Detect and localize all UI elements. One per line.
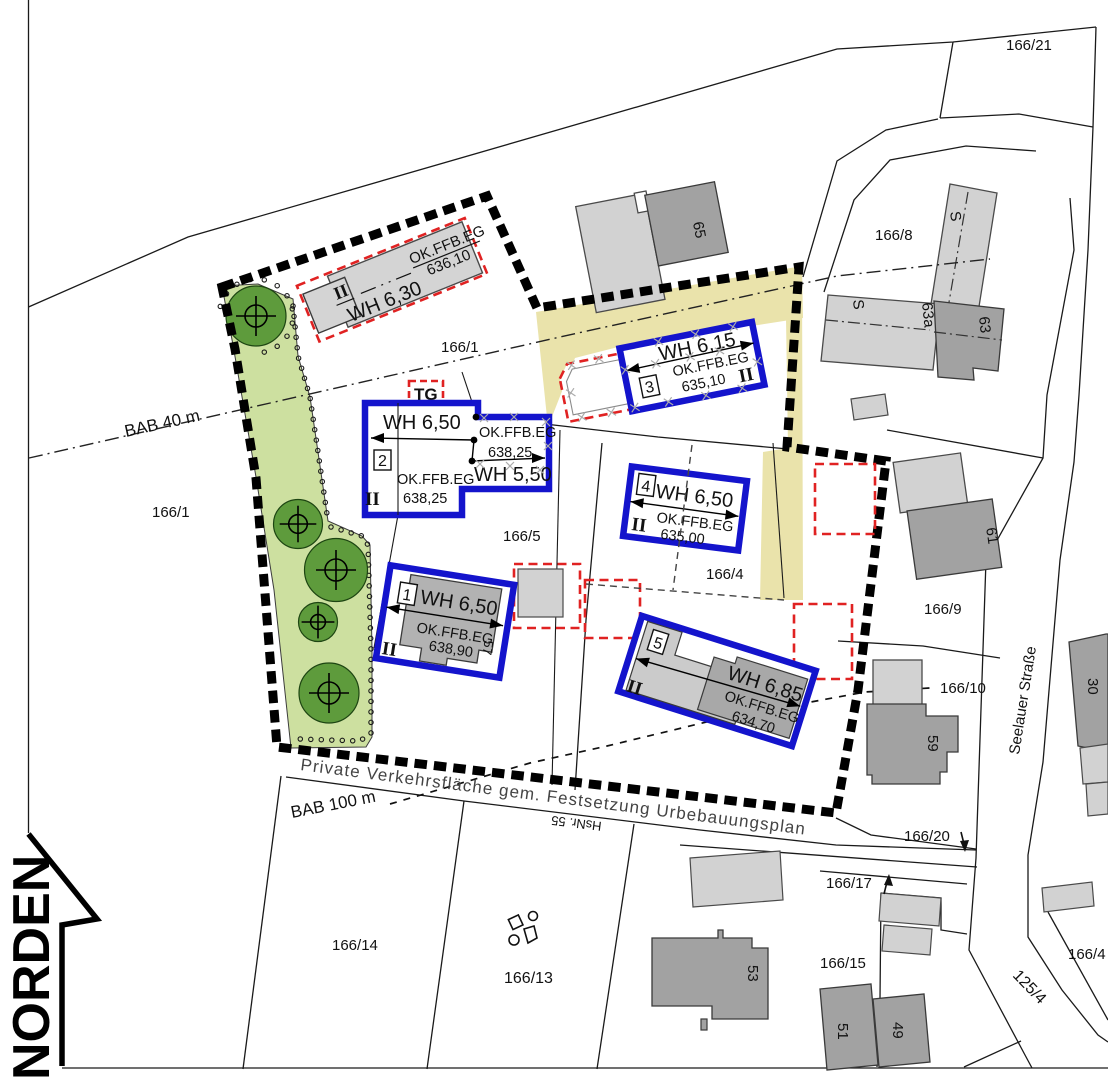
svg-text:166/10: 166/10	[940, 680, 986, 697]
svg-text:166/4: 166/4	[706, 566, 744, 583]
svg-text:166/20: 166/20	[904, 828, 950, 845]
svg-text:49: 49	[889, 1022, 906, 1039]
svg-text:166/17: 166/17	[826, 875, 872, 892]
svg-text:30: 30	[1084, 678, 1101, 695]
svg-text:63: 63	[975, 316, 994, 334]
svg-text:166/5: 166/5	[503, 528, 541, 545]
svg-text:53: 53	[744, 965, 761, 982]
svg-text:166/21: 166/21	[1006, 37, 1052, 54]
svg-text:166/1: 166/1	[152, 504, 190, 521]
svg-text:166/13: 166/13	[504, 970, 553, 987]
svg-text:OK.FFB.EG: OK.FFB.EG	[479, 425, 556, 441]
svg-text:S: S	[849, 299, 867, 311]
svg-text:638,25: 638,25	[403, 491, 447, 507]
svg-text:166/1: 166/1	[441, 339, 479, 356]
svg-text:II: II	[365, 489, 380, 510]
svg-text:166/15: 166/15	[820, 955, 866, 972]
svg-text:WH 5,50: WH 5,50	[474, 464, 552, 486]
svg-text:59: 59	[924, 735, 941, 752]
svg-text:51: 51	[834, 1023, 851, 1040]
svg-text:166/8: 166/8	[875, 227, 913, 244]
svg-text:166/4: 166/4	[1068, 946, 1106, 963]
svg-text:65: 65	[689, 220, 709, 240]
svg-text:2: 2	[378, 453, 387, 470]
svg-text:166/9: 166/9	[924, 601, 962, 618]
svg-text:WH 6,50: WH 6,50	[383, 412, 461, 434]
svg-text:61: 61	[982, 526, 1001, 545]
svg-text:OK.FFB.EG: OK.FFB.EG	[397, 472, 474, 488]
svg-text:NORDEN: NORDEN	[3, 855, 61, 1080]
svg-text:57: 57	[479, 639, 496, 656]
svg-text:166/14: 166/14	[332, 937, 378, 954]
svg-text:II: II	[630, 514, 647, 537]
